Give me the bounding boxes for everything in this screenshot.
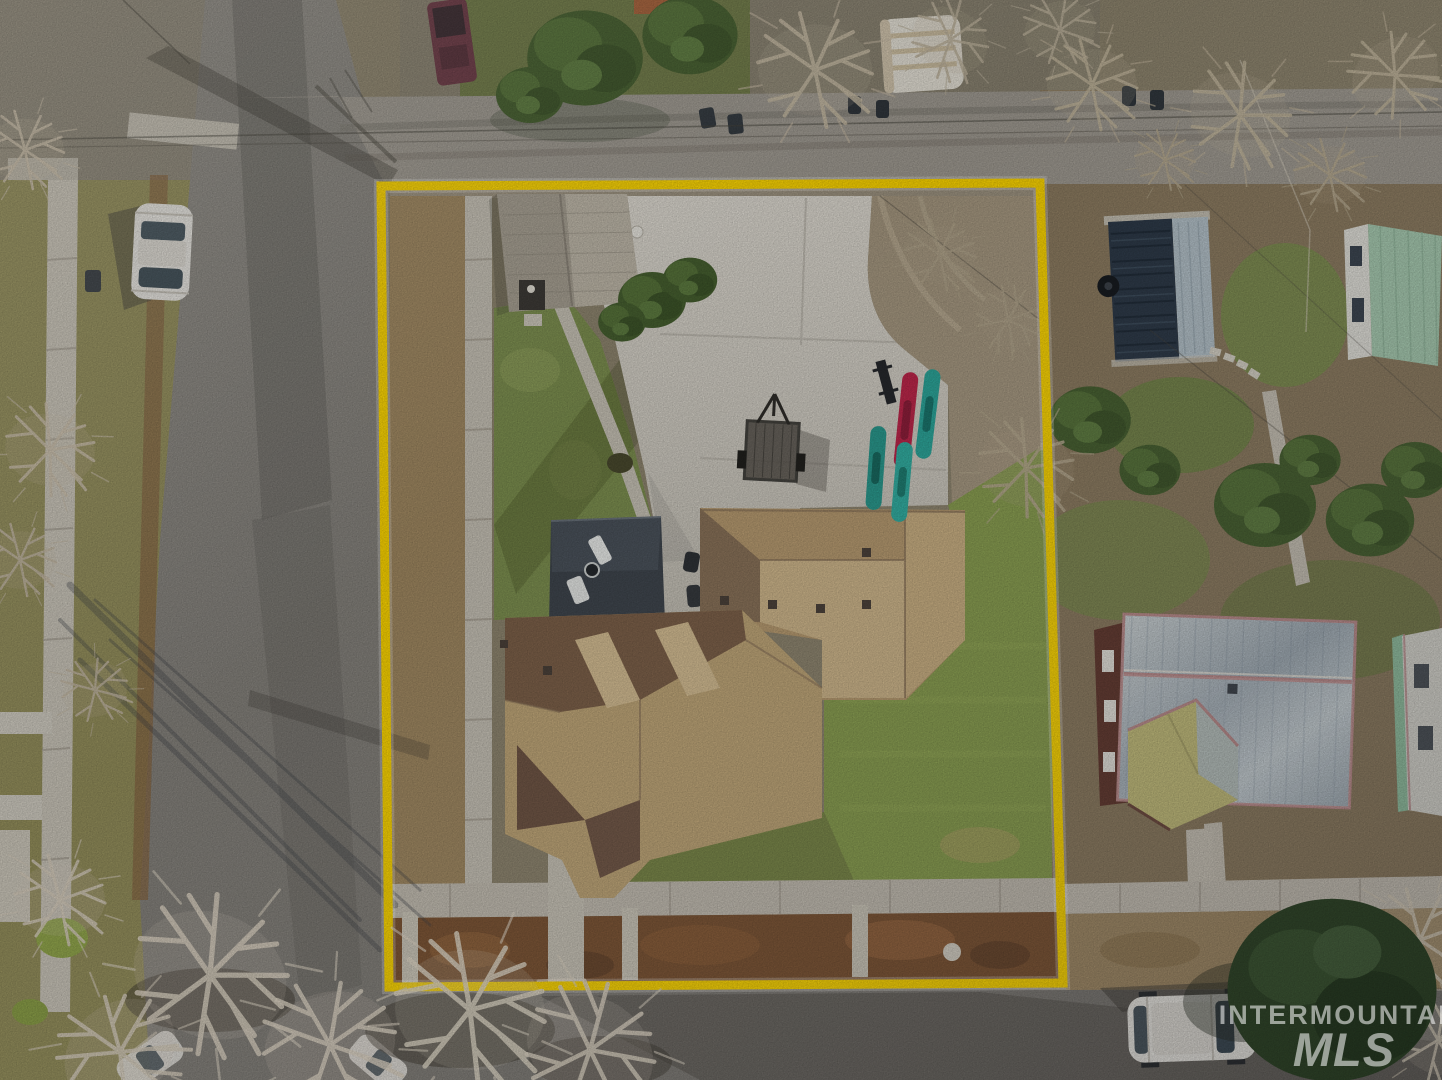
- aerial-photo: [0, 0, 1442, 1080]
- film-grain: [0, 0, 1442, 1080]
- aerial-photo-canvas: INTERMOUNTAIN MLS: [0, 0, 1442, 1080]
